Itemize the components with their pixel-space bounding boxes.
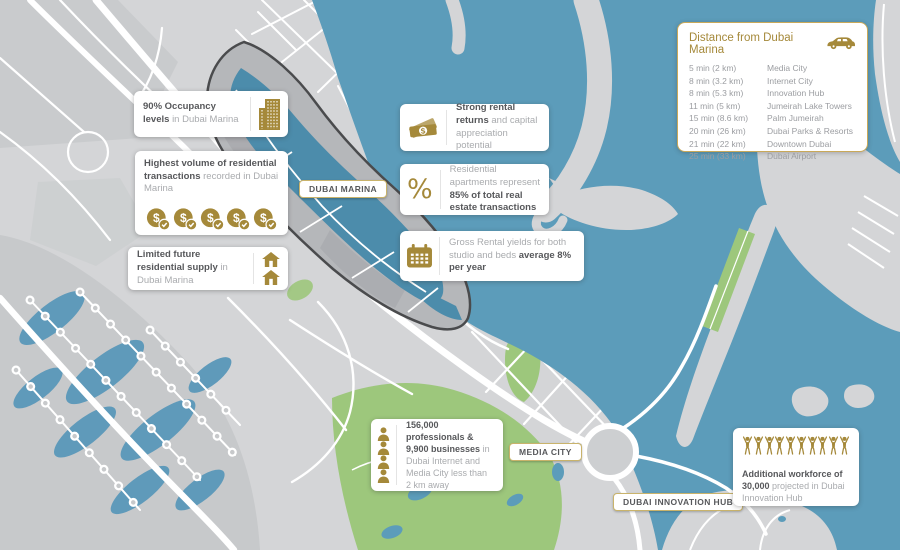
car-icon <box>826 36 856 53</box>
person-icon <box>377 469 390 483</box>
person-icon <box>377 441 390 455</box>
roundabout <box>584 426 636 478</box>
house-icon <box>262 270 280 285</box>
distance-place: Downtown Dubai <box>767 138 856 151</box>
dollar-coin-icon: $ <box>145 208 171 231</box>
dollar-coin-icon: $ <box>172 208 198 231</box>
distance-place: Jumeirah Lake Towers <box>767 100 856 113</box>
callout-occupancy: 90% Occupancy levels in Dubai Marina <box>134 91 288 137</box>
distance-row: 21 min (22 km) Downtown Dubai <box>689 138 856 151</box>
distance-place: Palm Jumeirah <box>767 112 856 125</box>
dollar-coin-icon: $ <box>225 208 251 231</box>
map-label-innovation-hub: DUBAI INNOVATION HUB <box>613 493 743 511</box>
cheering-person-icon <box>829 436 838 455</box>
infographic-map: DUBAI MARINA MEDIA CITY DUBAI INNOVATION… <box>0 0 900 550</box>
distance-time: 8 min (3.2 km) <box>689 75 767 88</box>
distance-time: 11 min (5 km) <box>689 100 767 113</box>
yields-text: Gross Rental yields for both studio and … <box>440 230 584 282</box>
cheering-person-icon <box>808 436 817 455</box>
cheering-person-icon <box>754 436 763 455</box>
house-icon <box>262 252 280 267</box>
distance-row: 15 min (8.6 km) Palm Jumeirah <box>689 112 856 125</box>
cheering-person-icon <box>797 436 806 455</box>
cheering-person-icon <box>743 436 752 455</box>
distance-row: 8 min (3.2 km) Internet City <box>689 75 856 88</box>
supply-text-bold: Limited future residential supply <box>137 249 218 273</box>
distance-place: Dubai Airport <box>767 150 856 163</box>
small-lake <box>552 463 564 481</box>
dollar-coin-icon: $ <box>252 208 278 231</box>
distance-time: 15 min (8.6 km) <box>689 112 767 125</box>
cheering-person-icon <box>840 436 849 455</box>
distance-place: Dubai Parks & Resorts <box>767 125 856 138</box>
map-label-media-city: MEDIA CITY <box>509 443 582 461</box>
distance-panel-title: Distance from Dubai Marina <box>689 32 826 56</box>
professionals-text: 156,000 professionals & 9,900 businesses… <box>397 412 503 498</box>
rental-text: Strong rental returns and capital apprec… <box>447 95 549 160</box>
apartments-text: Residential apartments represent 85% of … <box>441 157 549 222</box>
apartments-text-bold: 85% of total real estate transactions <box>450 190 537 214</box>
callout-apartments: % Residential apartments represent 85% o… <box>400 164 549 215</box>
callout-yields: Gross Rental yields for both studio and … <box>400 231 584 281</box>
apartments-text-lead: Residential apartments represent <box>450 164 540 188</box>
distance-time: 20 min (26 km) <box>689 125 767 138</box>
distance-row: 5 min (2 km) Media City <box>689 62 856 75</box>
house-icons <box>254 247 288 290</box>
person-icons <box>371 419 396 491</box>
building-icon <box>251 91 288 137</box>
distance-place: Media City <box>767 62 856 75</box>
occupancy-text-rest: in Dubai Marina <box>172 114 239 125</box>
distance-time: 21 min (22 km) <box>689 138 767 151</box>
callout-professionals: 156,000 professionals & 9,900 businesses… <box>371 419 503 491</box>
callout-rental: $ Strong rental returns and capital appr… <box>400 104 549 151</box>
figure-row <box>733 428 859 461</box>
workforce-text: Additional workforce of 30,000 projected… <box>733 461 859 511</box>
distance-row: 25 min (33 km) Dubai Airport <box>689 150 856 163</box>
distance-panel-header: Distance from Dubai Marina <box>689 32 856 56</box>
dollar-coin-icon: $ <box>199 208 225 231</box>
callout-transactions: Highest volume of residential transactio… <box>135 151 288 235</box>
professionals-text-bold: 156,000 professionals & 9,900 businesses <box>406 420 480 454</box>
distance-row: 20 min (26 km) Dubai Parks & Resorts <box>689 125 856 138</box>
cheering-person-icon <box>786 436 795 455</box>
banknotes-icon: $ <box>400 104 446 151</box>
person-icon <box>377 455 390 469</box>
cheering-person-icon <box>775 436 784 455</box>
distance-time: 25 min (33 km) <box>689 150 767 163</box>
percent-icon: % <box>400 164 440 215</box>
callout-workforce: Additional workforce of 30,000 projected… <box>733 428 859 506</box>
transactions-text: Highest volume of residential transactio… <box>135 151 288 203</box>
distance-place: Internet City <box>767 75 856 88</box>
distance-row: 8 min (5.3 km) Innovation Hub <box>689 87 856 100</box>
distance-panel: Distance from Dubai Marina 5 min (2 km) … <box>677 22 868 152</box>
distance-time: 5 min (2 km) <box>689 62 767 75</box>
map-label-dubai-marina: DUBAI MARINA <box>299 180 387 198</box>
callout-supply: Limited future residential supply in Dub… <box>128 247 288 290</box>
distance-place: Innovation Hub <box>767 87 856 100</box>
coin-row: $ $ $ $ $ <box>135 203 288 238</box>
distance-list: 5 min (2 km) Media City 8 min (3.2 km) I… <box>689 62 856 163</box>
occupancy-text: 90% Occupancy levels in Dubai Marina <box>134 94 250 133</box>
distance-time: 8 min (5.3 km) <box>689 87 767 100</box>
calendar-icon <box>400 231 439 281</box>
cheering-person-icon <box>765 436 774 455</box>
person-icon <box>377 427 390 441</box>
distance-row: 11 min (5 km) Jumeirah Lake Towers <box>689 100 856 113</box>
supply-text: Limited future residential supply in Dub… <box>128 242 253 294</box>
cheering-person-icon <box>818 436 827 455</box>
